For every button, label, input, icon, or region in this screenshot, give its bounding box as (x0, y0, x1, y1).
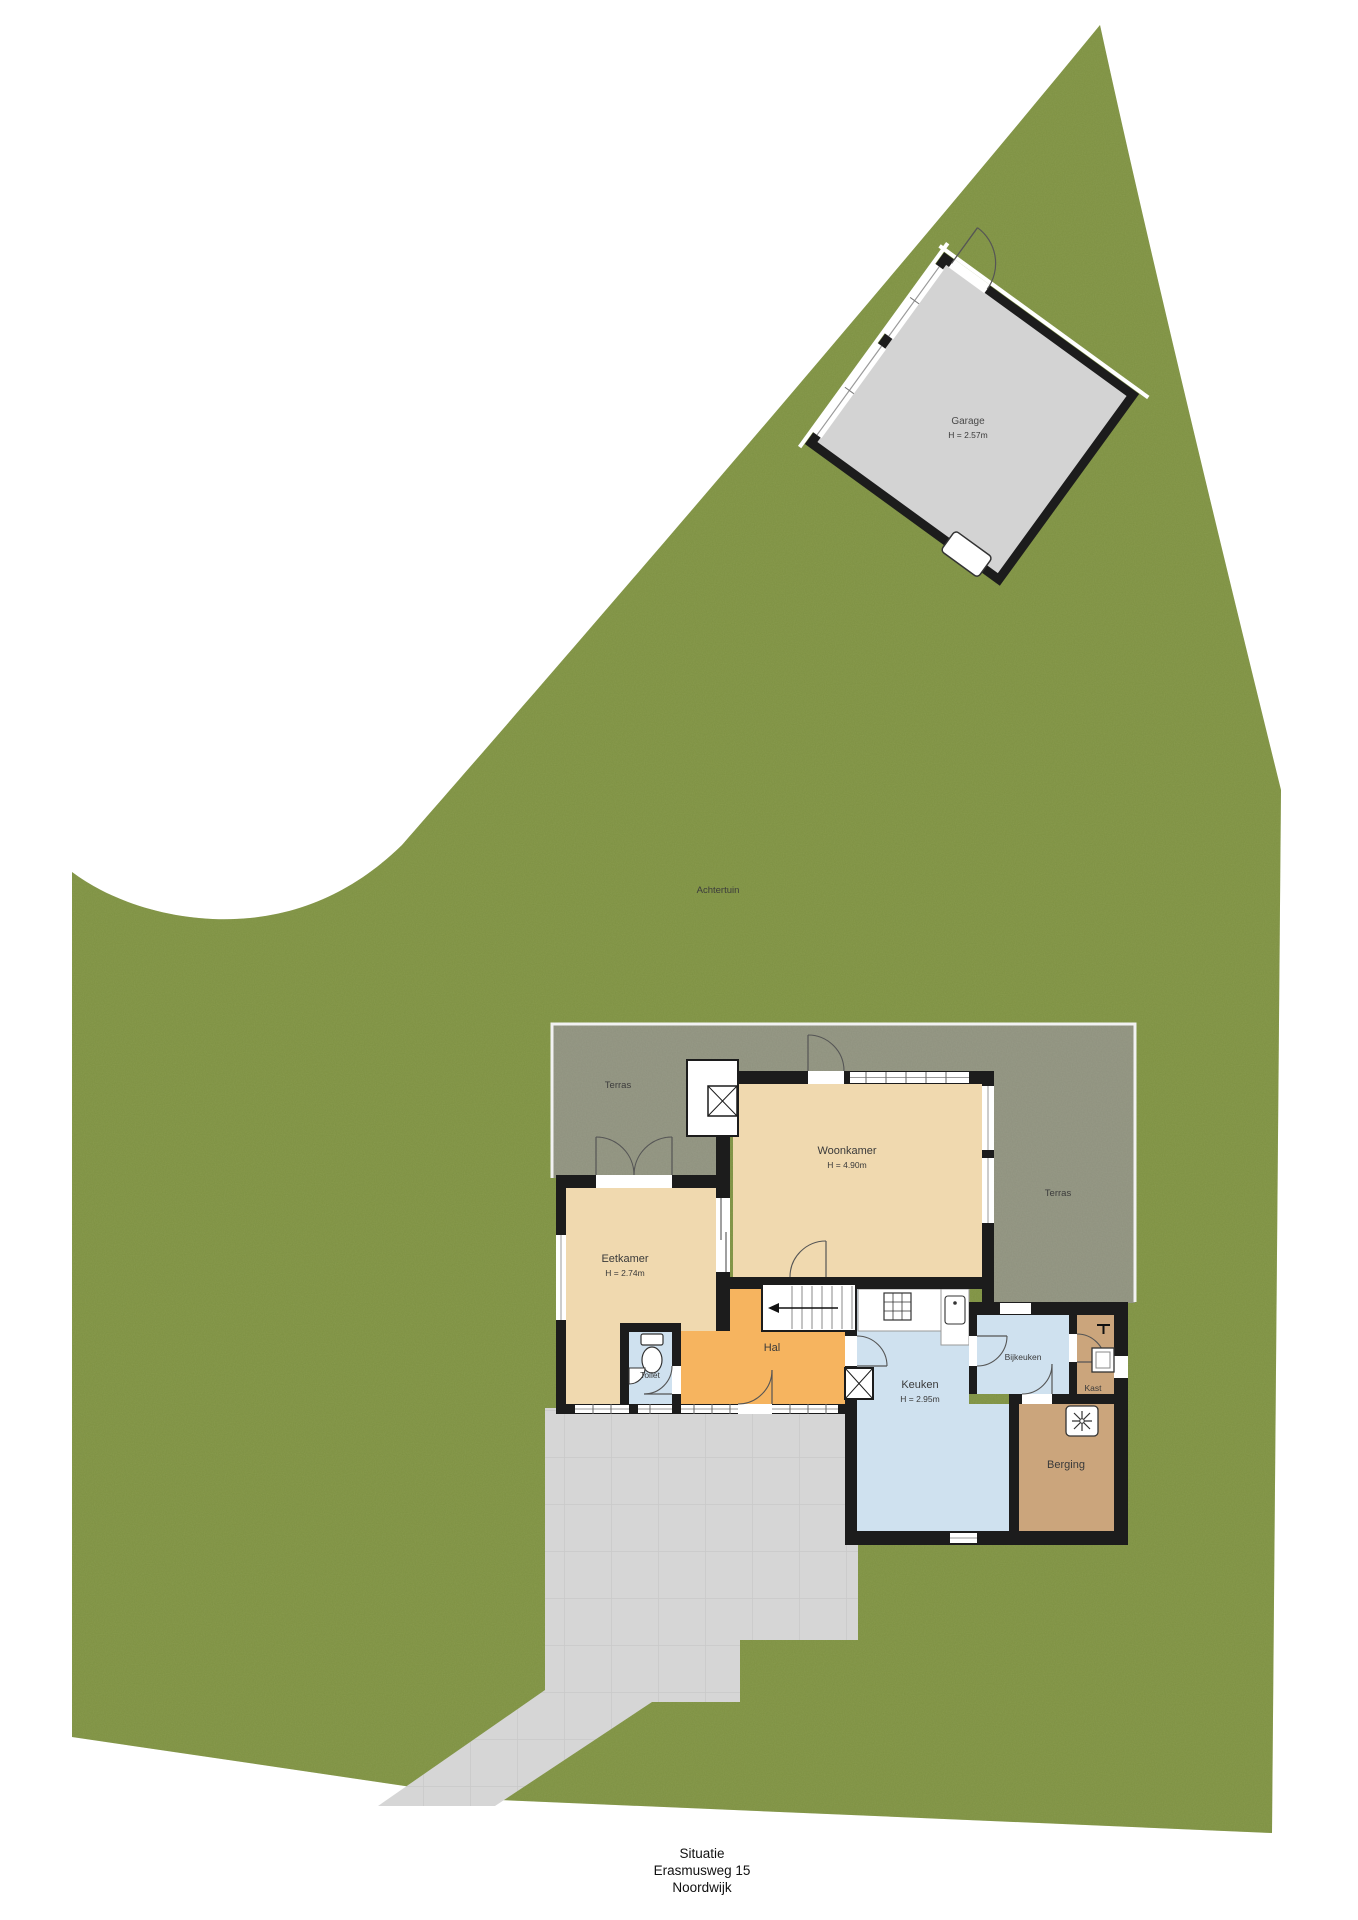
plan-address: Erasmusweg 15 (654, 1863, 751, 1878)
utility-sink-icon (1092, 1348, 1114, 1372)
window-south-band (575, 1404, 838, 1414)
room-label-hal: Hal (764, 1342, 781, 1354)
sliding-door (716, 1198, 730, 1272)
toilet-icon (641, 1334, 663, 1373)
window-west (556, 1235, 566, 1320)
kitchen-sink-icon (945, 1296, 965, 1324)
room-keuken-ext (969, 1404, 1009, 1531)
fan-icon (1066, 1406, 1098, 1436)
situation-plan: Achtertuin Garage H = 2.57m (0, 0, 1358, 1920)
stove-icon (884, 1293, 911, 1320)
room-label-woonkamer: Woonkamer (817, 1145, 876, 1157)
room-label-keuken: Keuken (901, 1379, 938, 1391)
room-label-toilet: Toilet (640, 1370, 660, 1380)
duct-icon (845, 1368, 873, 1399)
plan-drawing: Achtertuin Garage H = 2.57m (0, 0, 1358, 1920)
window-kast (1114, 1356, 1128, 1378)
window-bijkeuken (1000, 1303, 1031, 1314)
garage-name-label: Garage (951, 416, 985, 427)
room-height-woonkamer: H = 4.90m (827, 1160, 866, 1170)
room-height-eetkamer: H = 2.74m (605, 1268, 644, 1278)
room-label-berging: Berging (1047, 1459, 1085, 1471)
room-label-bijkeuken: Bijkeuken (1005, 1352, 1042, 1362)
chimney-icon (687, 1060, 738, 1136)
window-north (850, 1072, 969, 1083)
plan-city: Noordwijk (672, 1880, 732, 1895)
garage-height-label: H = 2.57m (948, 430, 987, 440)
room-label-kast: Kast (1084, 1383, 1102, 1393)
room-woonkamer (733, 1084, 982, 1277)
stairs-icon (762, 1284, 856, 1331)
terrace-left-label: Terras (605, 1080, 632, 1091)
window-keuken-south (950, 1533, 977, 1543)
plan-title: Situatie (679, 1846, 724, 1861)
terrace-right-label: Terras (1045, 1188, 1072, 1199)
garden-label: Achtertuin (697, 885, 740, 896)
room-label-eetkamer: Eetkamer (601, 1253, 648, 1265)
room-height-keuken: H = 2.95m (900, 1394, 939, 1404)
